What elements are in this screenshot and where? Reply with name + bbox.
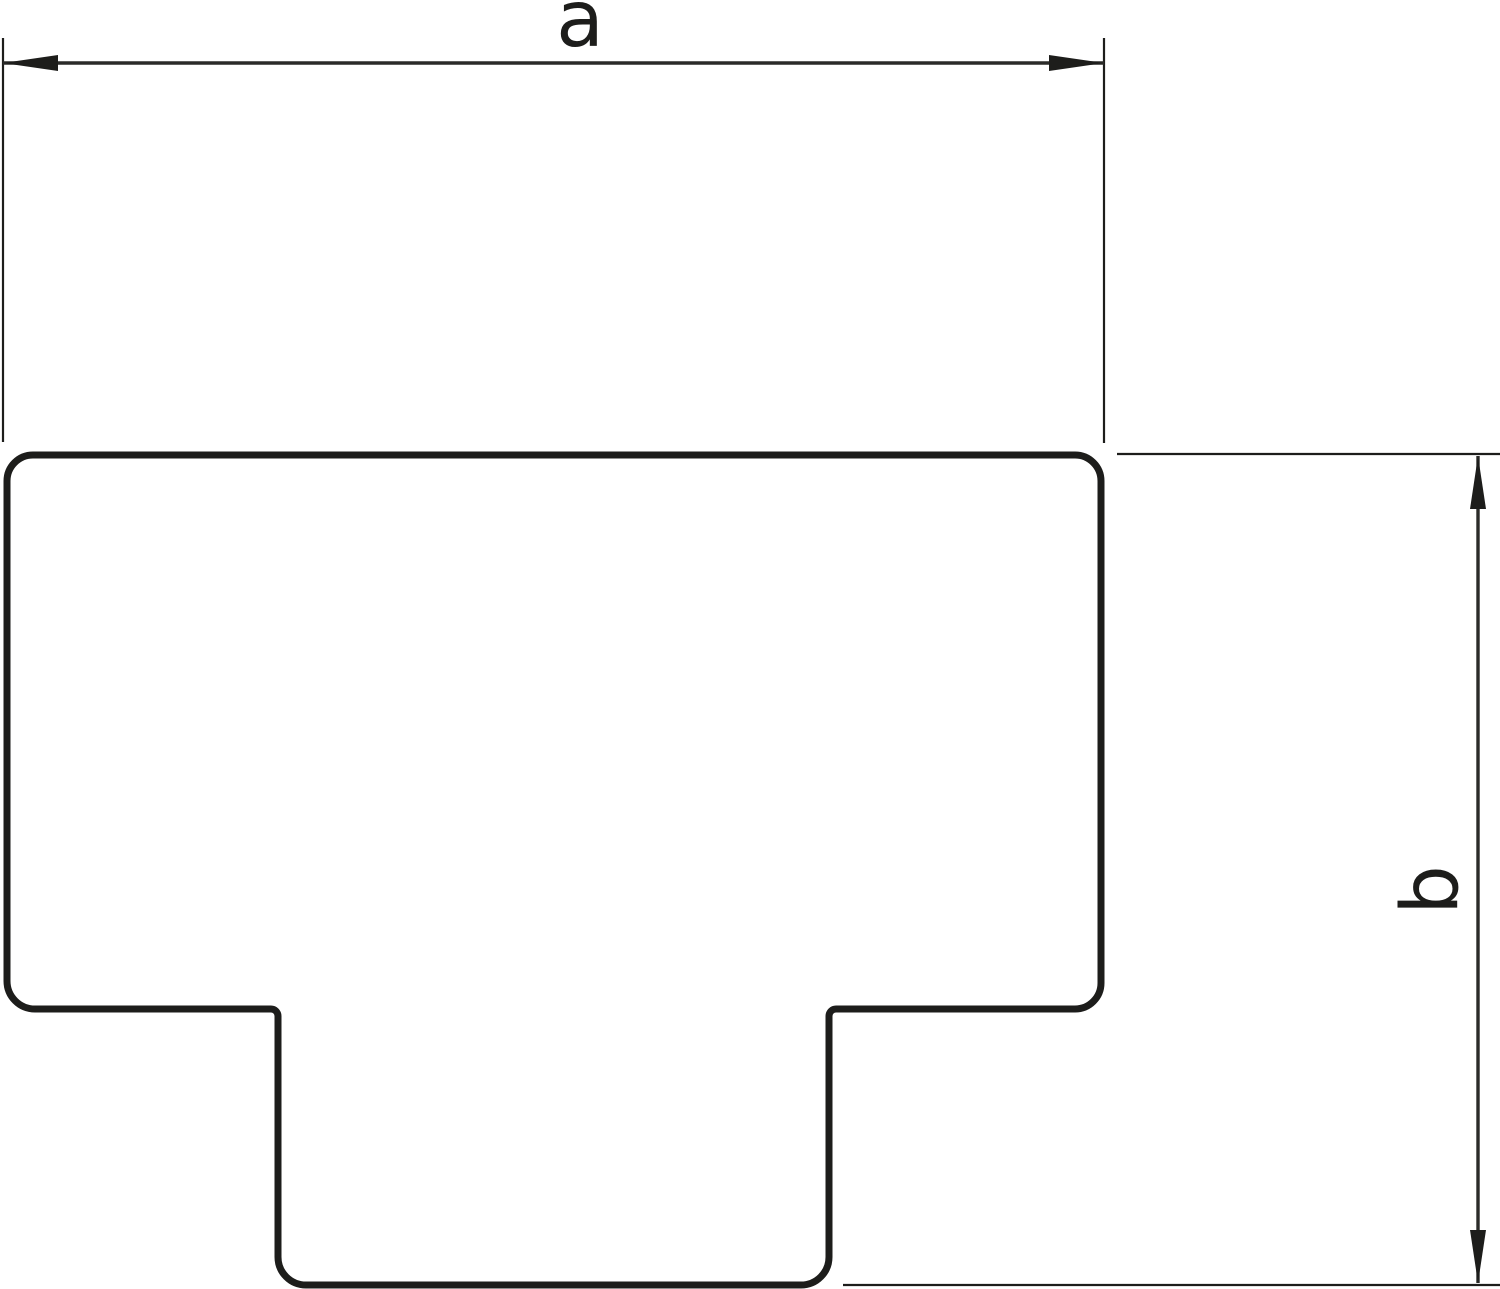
dimension-a-arrow-right-icon: [1049, 55, 1104, 71]
dimension-a-arrow-left-icon: [3, 55, 58, 71]
dimension-b-arrow-down-icon: [1470, 1230, 1486, 1283]
t-shape-outline: [7, 455, 1101, 1285]
dimension-b-label: b: [1386, 865, 1476, 915]
technical-dimension-drawing: a b: [0, 0, 1500, 1289]
dimension-a-label: a: [556, 0, 604, 65]
dimension-a: a: [3, 0, 1104, 443]
drawing-canvas: a b: [0, 0, 1500, 1289]
dimension-b-arrow-up-icon: [1470, 456, 1486, 509]
